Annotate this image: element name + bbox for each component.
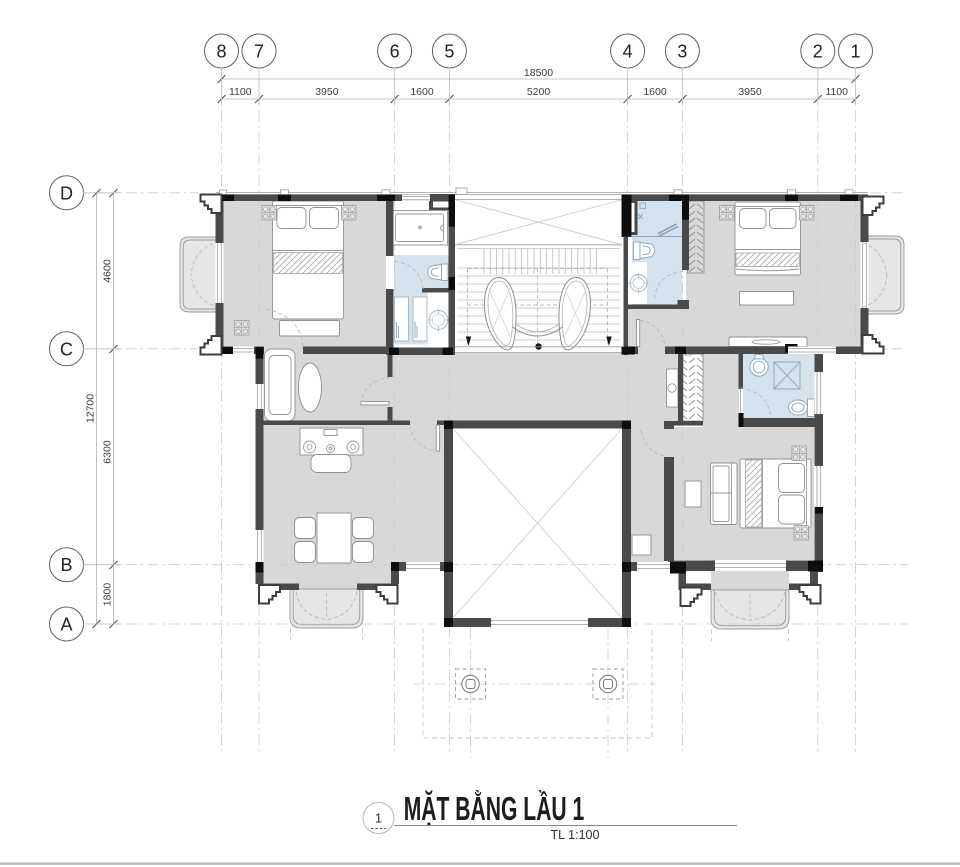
svg-text:4600: 4600 [102,259,114,283]
svg-text:1: 1 [375,811,382,826]
svg-text:5200: 5200 [527,86,551,98]
svg-text:18500: 18500 [524,67,553,79]
svg-text:12700: 12700 [85,394,97,423]
svg-text:6300: 6300 [102,440,114,464]
svg-text:3950: 3950 [738,86,762,98]
svg-text:8: 8 [216,42,226,62]
svg-text:3950: 3950 [315,86,339,98]
svg-text:D: D [60,183,73,203]
svg-text:6: 6 [390,42,400,62]
svg-text:MẶT BẰNG LẦU 1: MẶT BẰNG LẦU 1 [404,790,585,827]
svg-text:5: 5 [444,42,454,62]
svg-text:3: 3 [677,42,687,62]
svg-text:1100: 1100 [229,86,252,98]
svg-text:1600: 1600 [643,86,667,98]
svg-text:1800: 1800 [102,583,114,607]
svg-text:B: B [60,555,72,575]
svg-text:4: 4 [623,42,633,62]
svg-text:C: C [60,339,73,359]
svg-text:A: A [60,615,72,635]
svg-text:1100: 1100 [825,86,848,98]
svg-text:2: 2 [813,42,823,62]
svg-text:1: 1 [850,42,860,62]
svg-text:7: 7 [254,42,264,62]
svg-text:1600: 1600 [410,86,434,98]
svg-text:TL 1:100: TL 1:100 [551,828,600,842]
